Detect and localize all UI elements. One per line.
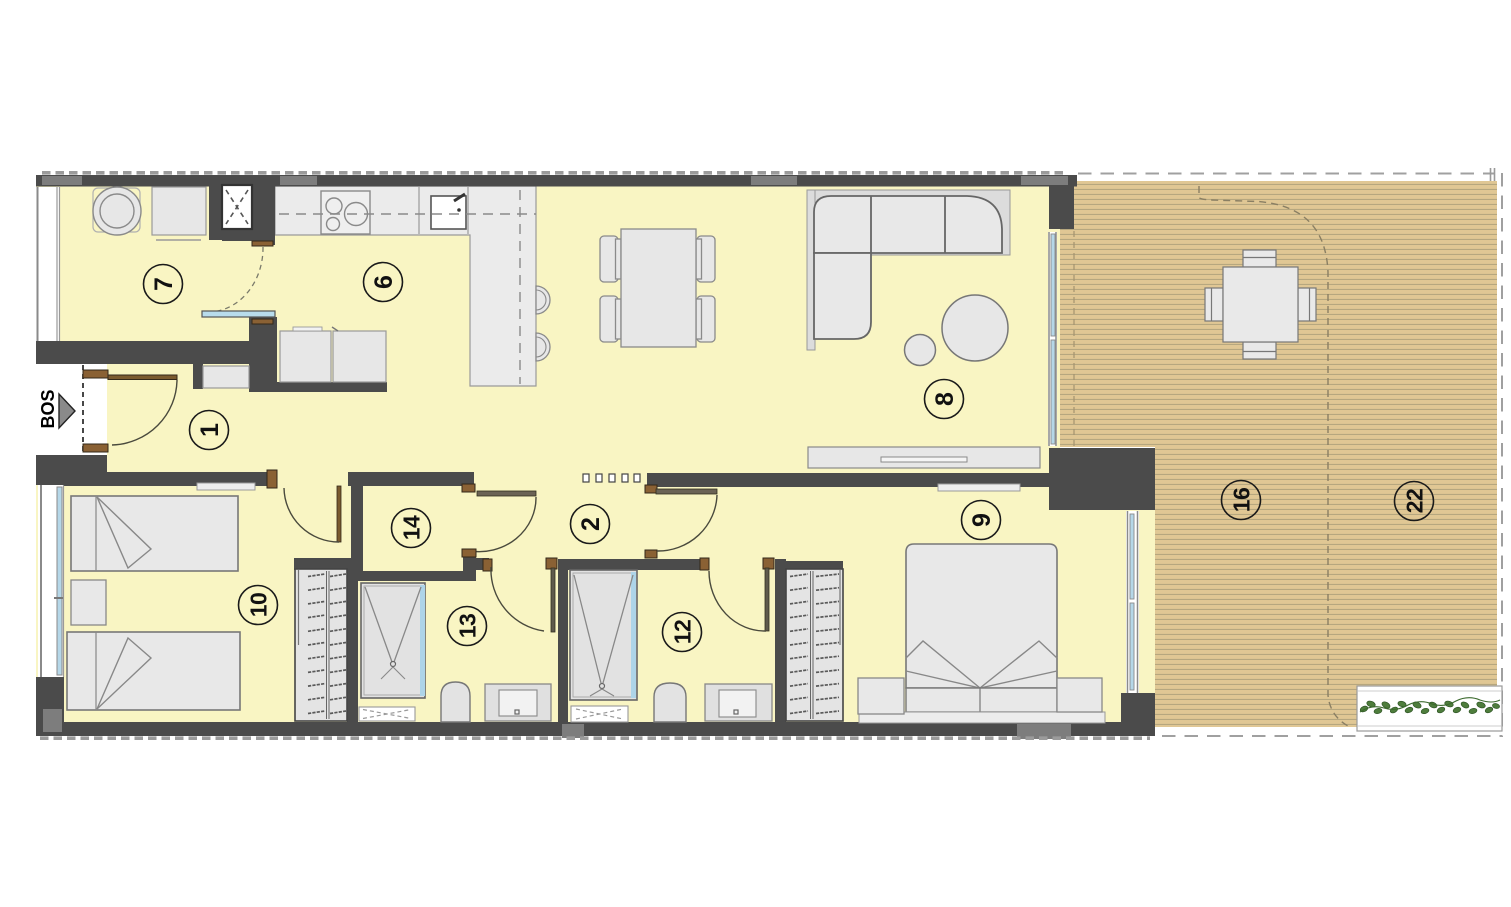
svg-text:6: 6: [370, 275, 398, 289]
svg-text:BOS: BOS: [38, 389, 58, 428]
svg-text:7: 7: [150, 277, 178, 291]
svg-text:22: 22: [1402, 489, 1428, 514]
svg-text:9: 9: [968, 513, 996, 527]
svg-text:10: 10: [246, 593, 272, 618]
svg-text:14: 14: [399, 515, 425, 540]
svg-text:13: 13: [455, 614, 481, 639]
svg-text:12: 12: [670, 620, 696, 645]
svg-text:1: 1: [196, 423, 224, 437]
svg-text:16: 16: [1229, 488, 1255, 513]
svg-text:8: 8: [931, 392, 959, 406]
svg-text:2: 2: [577, 517, 605, 531]
